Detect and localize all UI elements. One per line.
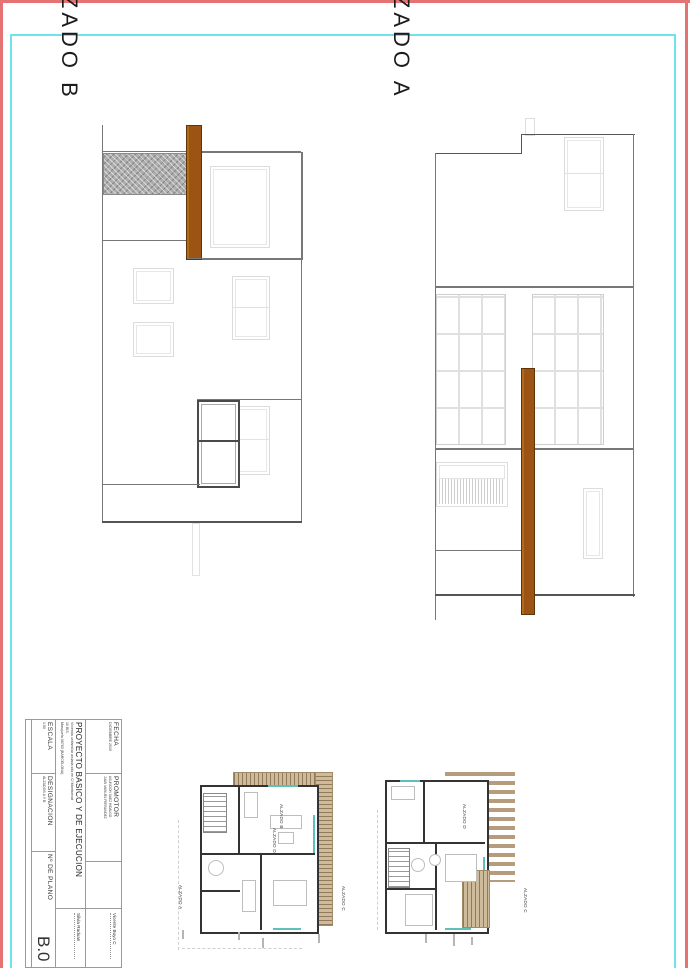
window-b2	[133, 268, 174, 304]
frame-left	[10, 34, 12, 968]
wood-pillar-a	[521, 368, 535, 615]
architect-cell-1: Silvia Raduan	[55, 908, 86, 968]
frame-right	[674, 34, 676, 968]
promotor-label: PROMOTOR	[112, 776, 119, 859]
fecha-label: FECHA	[112, 722, 119, 771]
plan1-label-top: ALZADO B	[279, 804, 284, 829]
proyecto-line3: Masquefa 08783 (BARCELONA)	[60, 722, 64, 906]
escala-label: ESCALA	[46, 722, 53, 771]
designacion-cell: DESIGNACION ALZADOS A Y B	[31, 773, 56, 852]
proyecto-cell: PROYECTO BASICO Y DE EJECUCION Vivienda …	[55, 719, 86, 909]
escala-cell: ESCALA 1:50	[31, 719, 56, 774]
promotor-name1: ASUNCION SAEZ HIDALGO	[108, 776, 112, 859]
plano-number: B.0	[33, 936, 53, 962]
staircase-2	[388, 848, 410, 888]
promotor-name2: JUAN MANUEL FERNANDEZ	[103, 776, 107, 859]
louver-vent	[436, 462, 508, 507]
staircase	[203, 793, 227, 833]
window-a1	[564, 137, 604, 211]
elevation-a-title: ALZADO A	[388, 0, 414, 100]
wood-pillar-b	[186, 125, 202, 260]
plan-sheet: { "sheet": { "border_color": "#e57373", …	[0, 0, 690, 968]
architect-cell-2: Vicente Buyo C	[85, 908, 122, 968]
architect-1-name: Silvia Raduan	[76, 913, 81, 963]
promotor-cell: PROMOTOR ASUNCION SAEZ HIDALGO JUAN MANU…	[85, 773, 122, 862]
plan2-label-top: ALZADO D	[462, 804, 467, 829]
frame-top	[10, 34, 676, 36]
architect-2-name: Vicente Buyo C	[112, 913, 117, 963]
sheet-border-left	[0, 0, 3, 968]
num-plano-cell: Nº DE PLANO B.0	[31, 851, 56, 968]
sheet-border-top	[0, 0, 690, 3]
proyecto-line2: 10 BIS,	[65, 722, 69, 906]
floor-plan-2: ALZADO D ALZADO C	[375, 762, 550, 962]
window-a2-narrow	[583, 488, 603, 559]
plan1-label-mid: ALZADO D	[272, 828, 277, 853]
sheet-border-right	[685, 0, 688, 968]
gravel-band	[103, 153, 189, 195]
window-b3	[133, 322, 174, 357]
proyecto-title: PROYECTO BASICO Y DE EJECUCION	[74, 722, 83, 906]
window-b1	[210, 166, 270, 248]
elevation-b-title: ALZADO B	[56, 0, 82, 101]
post-below-b	[192, 523, 200, 576]
curtain-wall-left	[436, 294, 506, 445]
plan2-label-right: ALZADO C	[523, 888, 528, 913]
window-b6-dark	[197, 400, 240, 488]
fecha-cell: FECHA DICIEMBRE 2019	[85, 719, 122, 774]
plan1-label-left: ALZADO A	[178, 885, 183, 909]
curtain-wall-right	[532, 294, 604, 445]
designacion-label: DESIGNACION	[46, 776, 53, 849]
plan1-label-right: ALZADO C	[341, 886, 346, 911]
fecha-value: DICIEMBRE 2019	[108, 722, 112, 771]
window-b4	[232, 276, 270, 340]
floor-plan-1: ALZADO A ALZADO B ALZADO D ALZADO C	[178, 760, 348, 965]
